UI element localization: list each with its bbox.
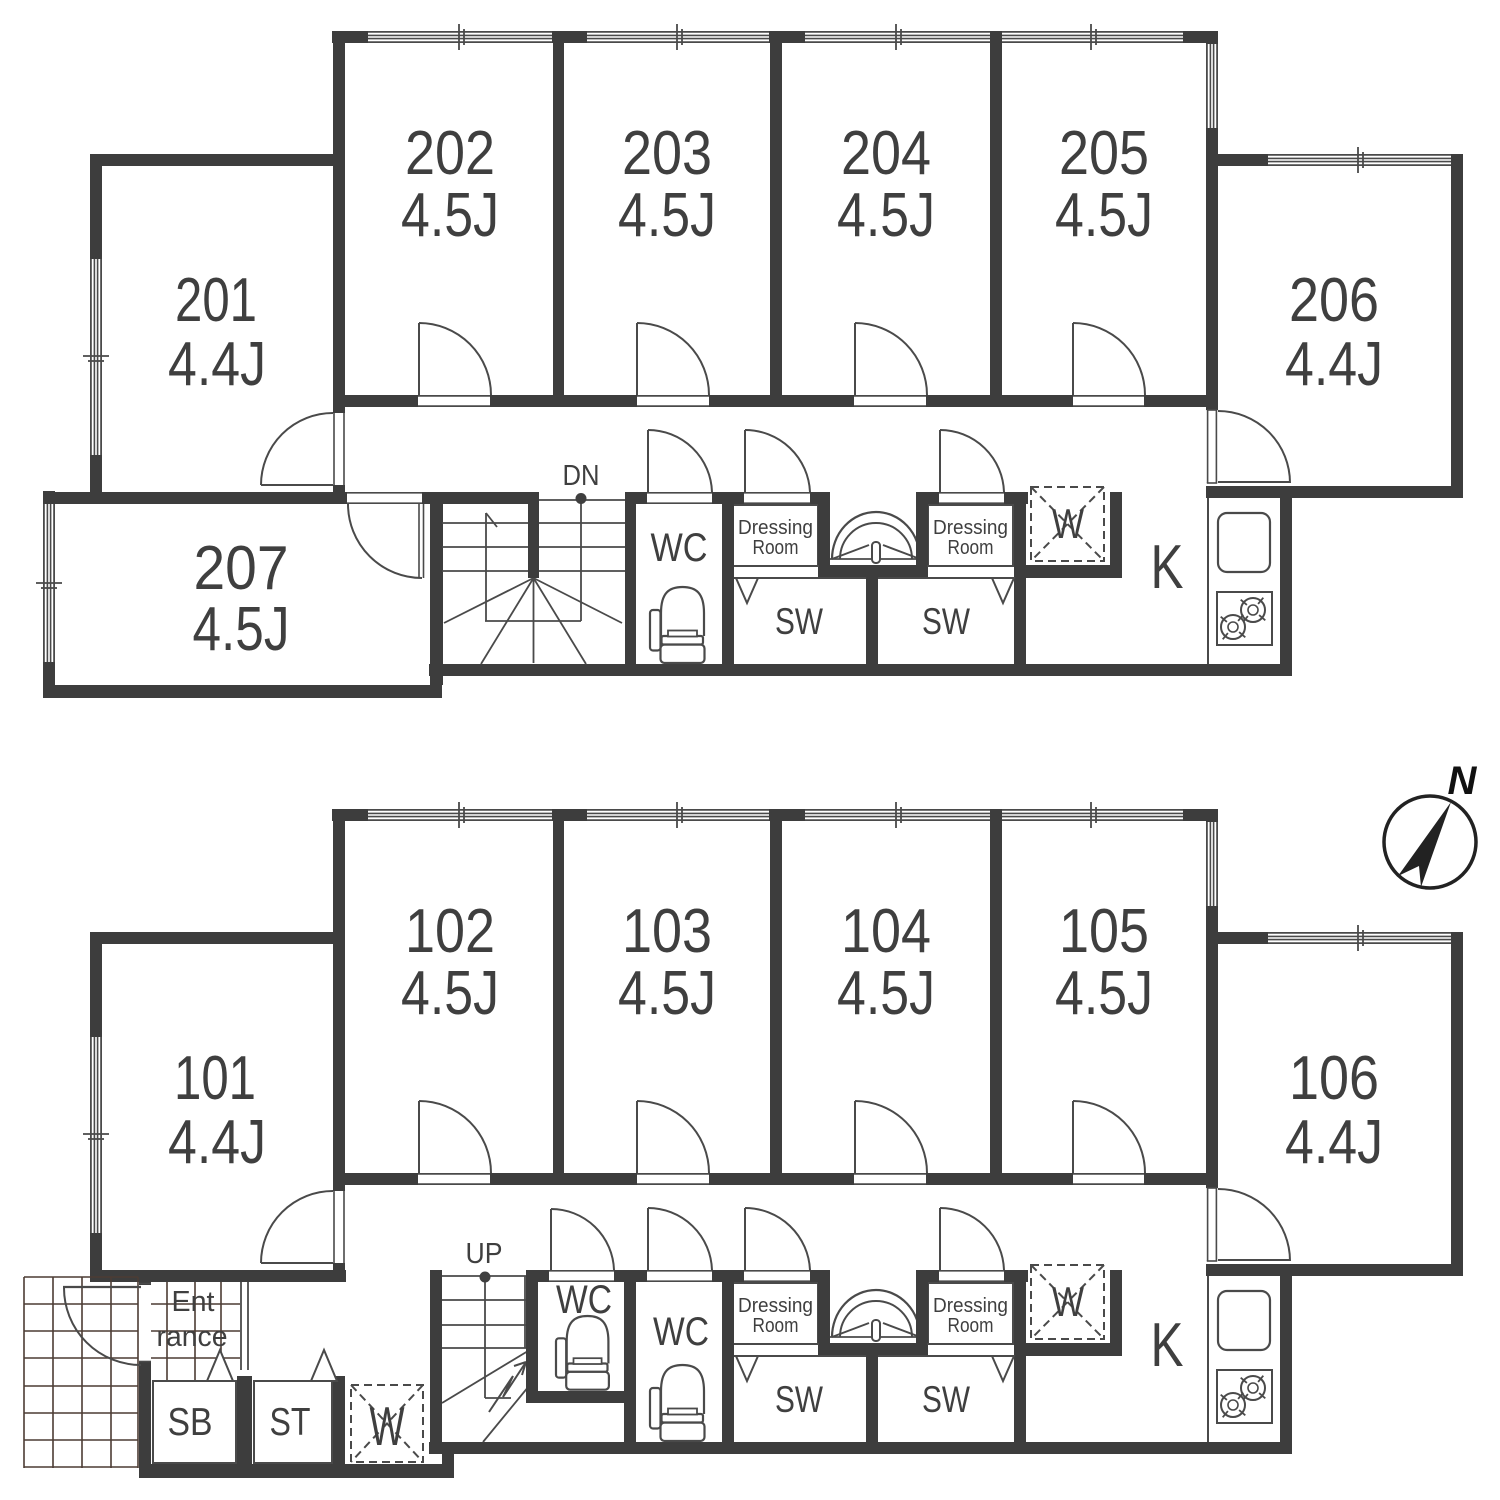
svg-text:4.5J: 4.5J <box>618 181 716 250</box>
svg-text:4.5J: 4.5J <box>837 181 935 250</box>
svg-text:SW: SW <box>922 601 970 642</box>
svg-text:4.4J: 4.4J <box>168 1108 266 1177</box>
svg-text:206: 206 <box>1289 266 1379 335</box>
svg-text:205: 205 <box>1059 119 1149 188</box>
svg-text:SW: SW <box>775 1379 823 1420</box>
svg-text:UP: UP <box>466 1238 503 1270</box>
svg-text:Room: Room <box>753 536 799 559</box>
svg-text:104: 104 <box>841 897 931 966</box>
svg-text:W: W <box>370 1395 405 1457</box>
svg-text:102: 102 <box>405 897 495 966</box>
svg-text:106: 106 <box>1289 1044 1379 1113</box>
svg-text:204: 204 <box>841 119 931 188</box>
svg-text:4.5J: 4.5J <box>193 595 290 664</box>
svg-text:4.4J: 4.4J <box>168 330 266 399</box>
svg-text:K: K <box>1151 533 1184 602</box>
svg-text:N: N <box>1448 759 1478 803</box>
svg-text:rance: rance <box>157 1321 228 1353</box>
svg-text:W: W <box>1052 500 1084 547</box>
svg-text:4.5J: 4.5J <box>401 959 499 1028</box>
svg-text:DN: DN <box>563 460 600 492</box>
svg-text:Room: Room <box>753 1314 799 1337</box>
svg-text:SW: SW <box>775 601 823 642</box>
svg-text:202: 202 <box>405 119 495 188</box>
svg-text:SB: SB <box>168 1401 213 1444</box>
svg-text:Room: Room <box>948 1314 994 1337</box>
svg-text:Ent: Ent <box>172 1286 215 1318</box>
svg-text:4.5J: 4.5J <box>618 959 716 1028</box>
svg-text:SW: SW <box>922 1379 970 1420</box>
svg-text:W: W <box>1052 1278 1084 1325</box>
svg-text:4.5J: 4.5J <box>1055 959 1153 1028</box>
svg-text:4.5J: 4.5J <box>837 959 935 1028</box>
svg-text:4.4J: 4.4J <box>1285 330 1383 399</box>
svg-text:4.5J: 4.5J <box>401 181 499 250</box>
svg-text:K: K <box>1151 1311 1184 1380</box>
svg-text:203: 203 <box>622 119 712 188</box>
svg-text:WC: WC <box>651 526 708 570</box>
svg-text:101: 101 <box>174 1044 256 1113</box>
svg-text:WC: WC <box>653 1310 709 1354</box>
svg-text:103: 103 <box>622 897 712 966</box>
svg-text:105: 105 <box>1059 897 1149 966</box>
svg-text:201: 201 <box>175 266 257 335</box>
svg-text:Room: Room <box>948 536 994 559</box>
svg-text:4.5J: 4.5J <box>1055 181 1153 250</box>
svg-text:4.4J: 4.4J <box>1285 1108 1383 1177</box>
svg-text:207: 207 <box>194 534 289 603</box>
svg-text:ST: ST <box>270 1401 311 1444</box>
